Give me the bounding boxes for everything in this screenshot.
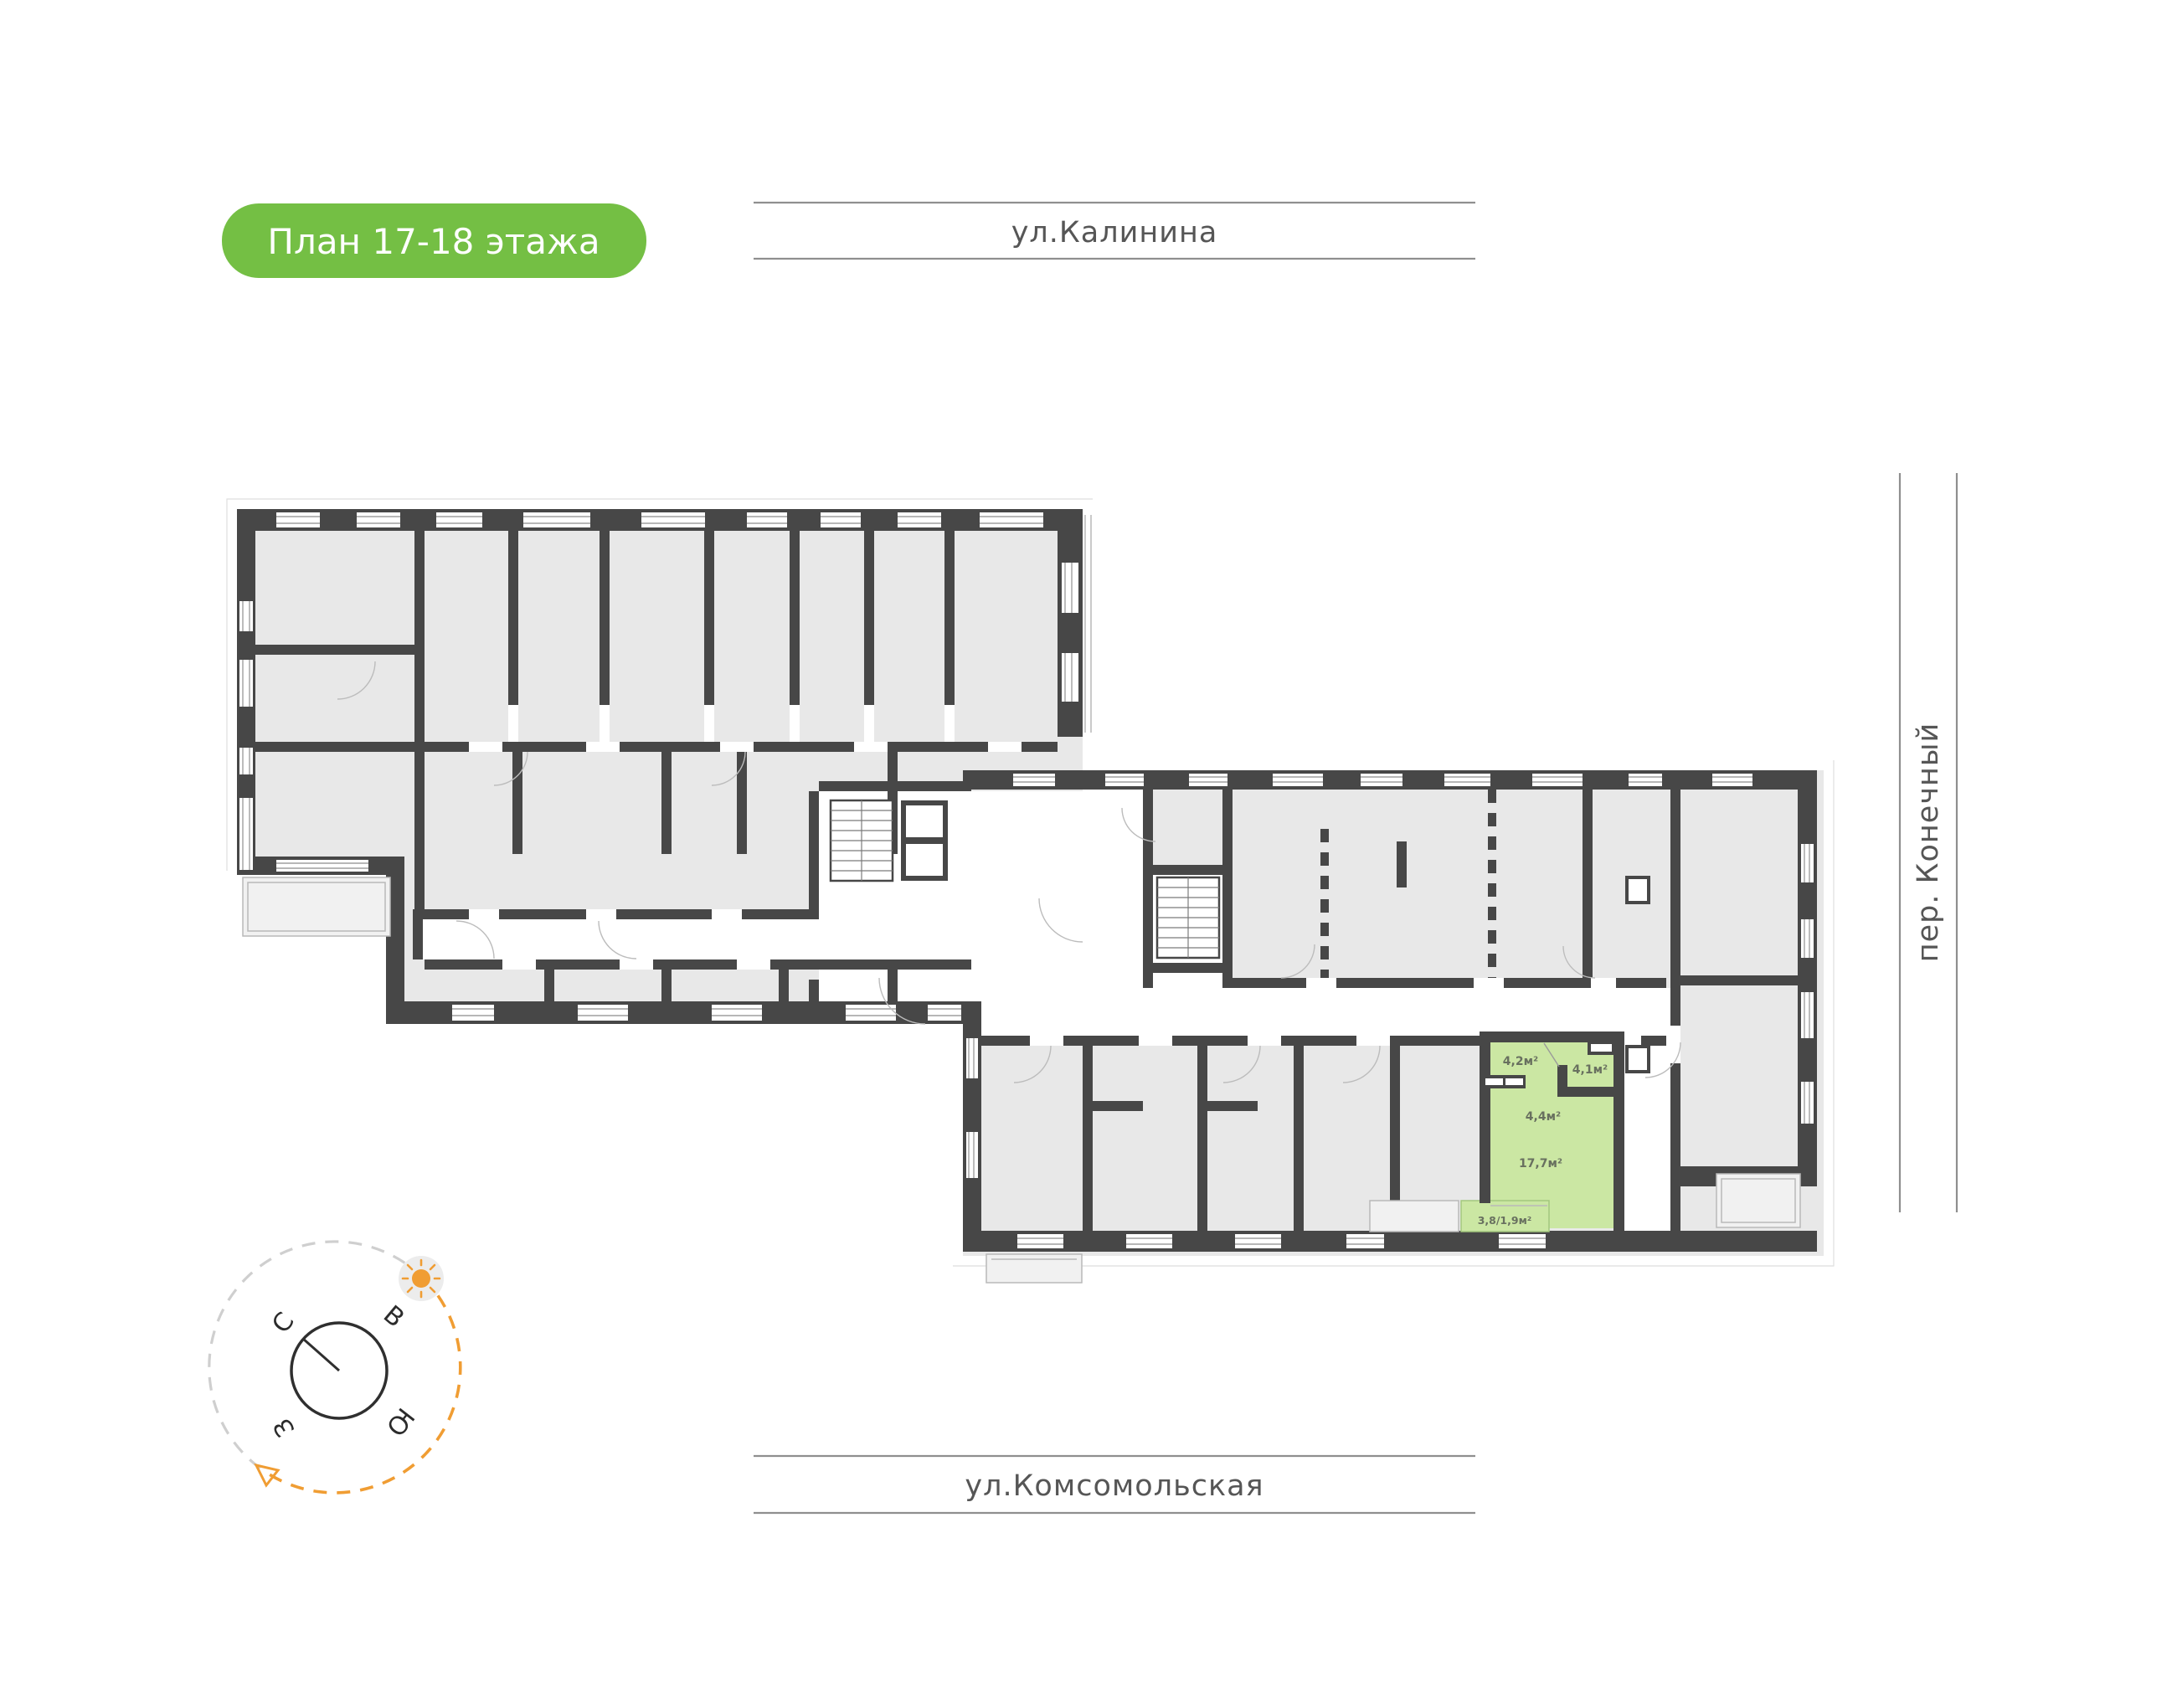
- entry-hall-b: [1083, 790, 1153, 988]
- area-label-hallway: 4,2м²: [1503, 1055, 1538, 1068]
- compass-west: З: [268, 1413, 301, 1442]
- street-right-label: пер. Конечный: [1912, 723, 1945, 963]
- street-top-label: ул.Калинина: [1011, 216, 1218, 250]
- area-label-kitchen: 4,4м²: [1526, 1110, 1561, 1124]
- compass-north: С: [266, 1307, 300, 1339]
- floor-badge-label: План 17-18 этажа: [267, 221, 600, 262]
- stairs-b: [1157, 877, 1219, 958]
- street-bottom-label: ул.Комсомольская: [965, 1469, 1263, 1503]
- street-right: пер. Конечный: [1900, 473, 1957, 1212]
- area-label-balcony: 3,8/1,9м²: [1478, 1214, 1532, 1227]
- corridor-b: [981, 988, 1666, 1036]
- street-bottom: ул.Комсомольская: [754, 1456, 1475, 1513]
- compass-east: В: [378, 1300, 409, 1334]
- compass-south: Ю: [380, 1402, 420, 1441]
- sun-icon: [399, 1256, 444, 1301]
- area-label-bathroom: 4,1м²: [1572, 1063, 1608, 1077]
- area-label-living: 17,7м²: [1519, 1157, 1562, 1170]
- corridor-b-right: [1624, 988, 1670, 1231]
- compass-rose: С В Ю З: [209, 1242, 461, 1493]
- floor-badge: План 17-18 этажа: [222, 203, 646, 278]
- corridor-a: [423, 919, 819, 959]
- street-top: ул.Калинина: [754, 203, 1475, 259]
- stairs-a: [831, 800, 948, 881]
- apartment-highlight[interactable]: 4,2м² 4,1м² 4,4м² 17,7м² 3,8/1,9м²: [1461, 1031, 1624, 1248]
- floor-plan-page: ул.Калинина ул.Комсомольская пер. Конечн…: [0, 0, 2177, 1708]
